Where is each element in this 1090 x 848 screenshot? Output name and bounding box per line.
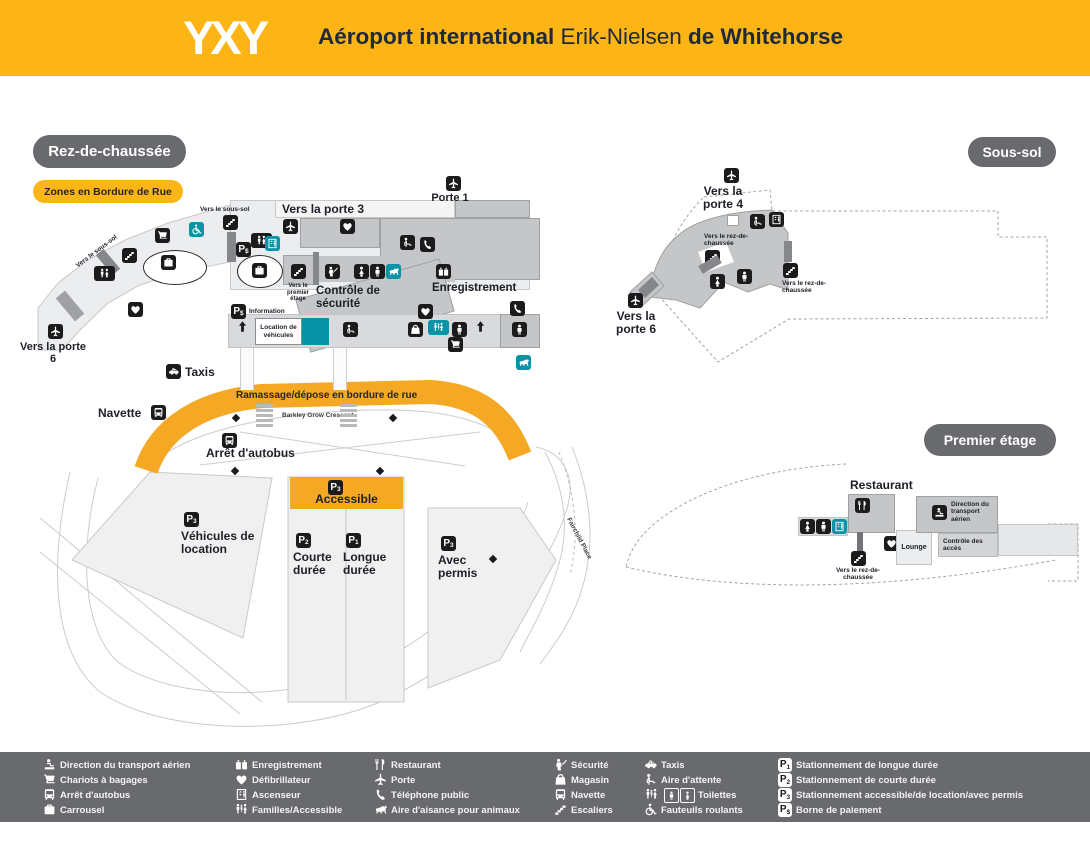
gate-icon: [373, 773, 388, 786]
taxis-icon: [643, 758, 658, 771]
header-bar: YXY Aéroport international Erik-Nielsen …: [0, 0, 1090, 76]
stairs-icon: [223, 215, 238, 230]
p-letter: P: [780, 775, 787, 785]
walkway-1: [240, 348, 254, 390]
shuttle-icon: [553, 788, 568, 801]
bs-escalator-shaft: [784, 241, 792, 262]
crosswalk-1: [256, 404, 273, 427]
shop-icon: [553, 773, 568, 786]
title-part-3: de Whitehorse: [688, 24, 843, 49]
ff-toilet-men-icon: [816, 519, 831, 534]
p-letter: P: [233, 307, 240, 317]
p-letter: P: [780, 790, 787, 800]
gate1-plane-icon: [446, 176, 461, 191]
checkin-icon: [436, 264, 451, 279]
p-sub: 2: [305, 540, 309, 547]
phone-icon: [510, 301, 525, 316]
badge-basement: Sous-sol: [968, 137, 1056, 167]
toilet-women-icon: [354, 264, 369, 279]
p-letter: P: [238, 245, 245, 255]
baggage-cart-icon: [448, 337, 463, 352]
taxi-icon: [166, 364, 181, 379]
ff-lounge-label: Lounge: [901, 544, 926, 551]
defibrillator-icon: [340, 219, 355, 234]
parking-long-icon: P1: [778, 758, 792, 772]
legend-label: Stationnement de longue durée: [796, 760, 938, 771]
legend-label: Sécurité: [571, 760, 609, 771]
p-sub: 3: [787, 795, 791, 802]
legend-label: Borne de paiement: [796, 805, 882, 816]
badge-ground-floor: Rez-de-chaussée: [33, 135, 186, 168]
ff-to-ground-label: Vers le rez-de-chaussée: [828, 567, 888, 582]
ff-admin-icon: [932, 505, 947, 520]
pet-relief-icon: [373, 803, 388, 816]
legend-label: Carrousel: [60, 805, 104, 816]
p-sub: $: [240, 311, 244, 318]
defibrillator-icon: [418, 304, 433, 319]
map-roads-layer: [0, 0, 1090, 848]
wheelchair-icon: [189, 222, 204, 237]
legend-label: Stationnement de courte durée: [796, 775, 936, 786]
yxy-logo: YXY: [183, 10, 265, 65]
legend-label: Magasin: [571, 775, 609, 786]
toilet-men-icon: [452, 322, 467, 337]
walkway-2: [333, 348, 347, 390]
public-phone-icon: [373, 788, 388, 801]
pay-station-icon: P$: [236, 242, 251, 257]
legend-label: Porte: [391, 775, 415, 786]
info-desk: [302, 318, 329, 345]
p-sub: $: [787, 810, 791, 817]
p3-rental-icon: P3: [184, 512, 199, 527]
checkin-label: Enregistrement: [432, 282, 516, 295]
shuttle-icon: [151, 405, 166, 420]
p-sub: 1: [355, 540, 359, 547]
check-in-icon: [234, 758, 249, 771]
p-letter: P: [348, 536, 355, 546]
to-basement-top-label: Vers le sous-sol: [200, 206, 250, 213]
legend-label: Arrêt d'autobus: [60, 790, 130, 801]
security-divider: [313, 252, 319, 285]
bs-to-gate6-label: Vers la porte 6: [605, 310, 667, 337]
carousel-icon: [161, 255, 176, 270]
shop-icon: [408, 322, 423, 337]
toilet-men-icon: [370, 264, 385, 279]
ff-admin-label: Direction du transport aérien: [951, 501, 997, 523]
airport-map-page: YXY Aéroport international Erik-Nielsen …: [0, 0, 1090, 848]
legend-label: Aire d'attente: [661, 775, 721, 786]
ff-restaurant-label: Restaurant: [850, 479, 913, 492]
gate3-plane-icon: [283, 219, 298, 234]
p-letter: P: [443, 539, 450, 549]
badge-first-floor: Premier étage: [924, 424, 1056, 456]
legend-label: Direction du transport aérien: [60, 760, 190, 771]
ff-stairs-icon: [851, 551, 866, 566]
legend-label: Téléphone public: [391, 790, 469, 801]
bus-stop-icon: [42, 788, 57, 801]
families-accessible-icon: [428, 320, 449, 335]
legend-label: Toilettes: [698, 790, 736, 801]
page-title: Aéroport international Erik-Nielsen de W…: [318, 24, 843, 50]
p-letter: P: [298, 536, 305, 546]
ff-lounge-box: Lounge: [896, 530, 932, 565]
waiting-area-icon: [400, 235, 415, 250]
ff-wing: [998, 524, 1078, 556]
shuttle-label: Navette: [98, 407, 141, 420]
parking-accessible-label: Accessible: [290, 493, 403, 506]
badge-basement-label: Sous-sol: [982, 144, 1041, 160]
ff-elevator-icon: [832, 519, 847, 534]
families-accessible-icon: [231, 803, 251, 816]
legend-bar: Direction du transport aérien Chariots à…: [0, 752, 1090, 822]
p-sub: 3: [450, 543, 454, 550]
pay-station-icon: P$: [778, 803, 792, 817]
bs-waiting-icon: [750, 214, 765, 229]
carousel-icon: [252, 263, 267, 278]
legend-label: Familles/Accessible: [252, 805, 342, 816]
bus-stop-label: Arrêt d'autobus: [206, 447, 295, 460]
toilet-women-icon: [680, 788, 695, 803]
parking-rental-label: Véhicules de location: [181, 530, 261, 557]
badge-ground-floor-label: Rez-de-chaussée: [48, 143, 171, 160]
restaurant-icon: [373, 758, 388, 771]
car-rental-label: Location de véhicules: [256, 324, 301, 339]
bs-white-room: [727, 215, 739, 226]
elevator-icon: [234, 788, 249, 801]
legend-label: Fauteuils roulants: [661, 805, 743, 816]
legend-label: Navette: [571, 790, 605, 801]
p3-permit-icon: P3: [441, 536, 456, 551]
legend-label: Taxis: [661, 760, 685, 771]
parking-accessible-icon: P3: [778, 788, 792, 802]
toilets-icon: [94, 266, 115, 281]
crosswalk-2: [340, 404, 357, 427]
parking-long-label: Longue durée: [343, 551, 395, 578]
p-sub: 3: [193, 519, 197, 526]
ff-stairs-shaft: [857, 532, 863, 552]
phone-icon: [420, 237, 435, 252]
bs-to-gate4-label: Vers la porte 4: [692, 185, 754, 212]
ff-access-label: Contrôle des accès: [943, 538, 989, 553]
bs-to-ground1-label: Vers le rez-de-chaussée: [704, 233, 762, 248]
legend-label: Aire d'aisance pour animaux: [391, 805, 520, 816]
parking-permit-label: Avec permis: [438, 554, 486, 581]
up-arrow-icon: [236, 320, 249, 333]
legend-label: Ascenseur: [252, 790, 301, 801]
taxis-label: Taxis: [185, 366, 215, 379]
p-letter: P: [330, 483, 337, 493]
toilet-men-icon: [664, 788, 679, 803]
toilet-men-icon: [512, 322, 527, 337]
elevator-icon: [265, 236, 280, 251]
baggage-cart-icon: [155, 228, 170, 243]
family-toilets-icon: [641, 788, 661, 801]
legend-label: Défibrillateur: [252, 775, 311, 786]
ff-restaurant-icon: [855, 498, 870, 513]
badge-curbside-zones: Zones en Bordure de Rue: [33, 180, 183, 203]
to-gate6-label: Vers la porte 6: [18, 341, 88, 366]
gate4-plane-icon: [724, 168, 739, 183]
wheelchairs-icon: [643, 803, 658, 816]
airport-administration-icon: [42, 758, 57, 771]
p-sub: 1: [787, 765, 791, 772]
to-first-floor-label: Vers le premier étage: [282, 283, 314, 303]
gate6-plane-icon: [48, 324, 63, 339]
bs-elevator-icon: [769, 212, 784, 227]
p2-short-icon: P2: [296, 533, 311, 548]
pet-relief-icon: [386, 264, 401, 279]
p-letter: P: [780, 805, 787, 815]
information-label: Information: [249, 308, 285, 315]
parking-short-label: Courte durée: [293, 551, 341, 578]
bs-toilet-women-icon: [710, 274, 725, 289]
legend-label: Enregistrement: [252, 760, 322, 771]
title-part-2: Erik-Nielsen: [554, 24, 688, 49]
waiting-area-icon: [643, 773, 658, 786]
legend-label: Restaurant: [391, 760, 441, 771]
stairs-icon: [553, 803, 568, 816]
p-sub: 2: [787, 780, 791, 787]
badge-first-floor-label: Premier étage: [944, 432, 1037, 448]
security-icon: [553, 758, 568, 771]
p1-long-icon: P1: [346, 533, 361, 548]
bs-stairs-icon: [783, 263, 798, 278]
legend-label: Escaliers: [571, 805, 613, 816]
security-label: Contrôle de sécurité: [316, 285, 388, 311]
defibrillator-icon: [234, 773, 249, 786]
defibrillator-icon: [128, 302, 143, 317]
p-sub: $: [245, 249, 249, 256]
bs-toilet-men-icon: [737, 269, 752, 284]
badge-curbside-label: Zones en Bordure de Rue: [44, 186, 172, 198]
stairs-icon: [291, 264, 306, 279]
to-gate3-label: Vers la porte 3: [282, 203, 364, 216]
waiting-area-icon: [343, 322, 358, 337]
carousel-icon: [42, 803, 57, 816]
security-icon: [325, 264, 340, 279]
gate1-label: Porte 1: [425, 192, 475, 204]
bs-gate6-plane-icon: [628, 293, 643, 308]
legend-label: Chariots à bagages: [60, 775, 148, 786]
pay-station-icon: P$: [231, 304, 246, 319]
ff-toilet-women-icon: [800, 519, 815, 534]
p-letter: P: [186, 515, 193, 525]
car-rental-desk: Location de véhicules: [255, 318, 302, 345]
stairs-icon: [122, 248, 137, 263]
bs-to-ground2-label: Vers le rez-de-chaussée: [782, 280, 840, 295]
pet-relief-icon: [516, 355, 531, 370]
curbside-pickup-label: Ramassage/dépose en bordure de rue: [236, 390, 417, 401]
legend-label: Stationnement accessible/de location/ave…: [796, 790, 1023, 801]
escalator-shaft: [227, 232, 236, 262]
up-arrow-icon: [474, 320, 487, 333]
parking-short-icon: P2: [778, 773, 792, 787]
title-part-1: Aéroport international: [318, 24, 554, 49]
baggage-carts-icon: [42, 773, 57, 786]
bus-stop-icon: [222, 433, 237, 448]
p-letter: P: [780, 760, 787, 770]
